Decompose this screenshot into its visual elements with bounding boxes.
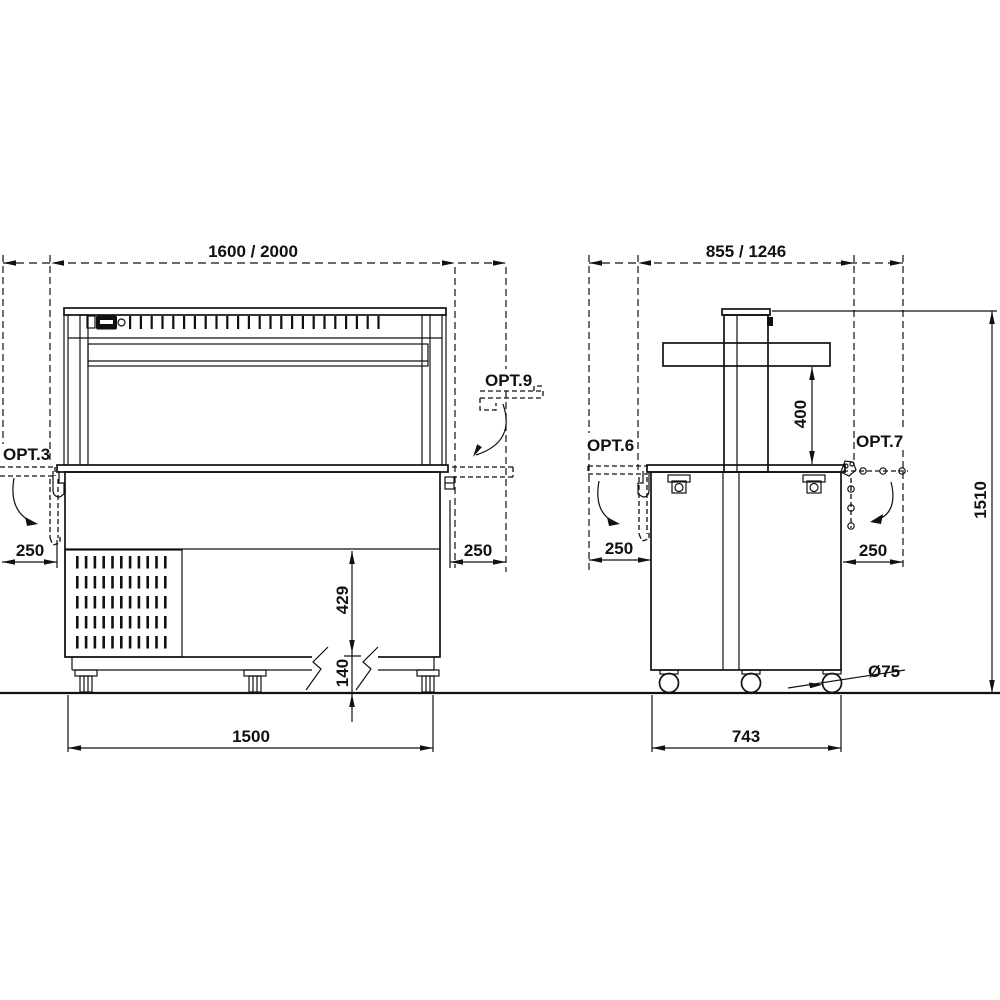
side-total-depth-dim: 855 / 1246: [706, 242, 786, 261]
front-upper-height-dim: 429: [333, 586, 352, 614]
front-counter-slab: [57, 465, 448, 472]
side-dimensions: 855 / 1246 250 250 400 1510 743 Ø75 O: [587, 242, 997, 752]
side-counter-slab: [647, 465, 845, 472]
front-body-width-dim: 1500: [232, 727, 270, 746]
opt7-rail-option: [841, 461, 908, 529]
side-post-knob: [767, 317, 773, 326]
grille-slots: [76, 556, 167, 649]
opt7-label: OPT.7: [856, 432, 903, 451]
front-shelf-left-dim: 250: [16, 541, 44, 560]
opt3-shelf-option: [0, 467, 64, 545]
front-light-strip: [88, 344, 428, 366]
front-outer-wall-right: [442, 315, 446, 465]
front-control-display-readout: [100, 320, 113, 324]
caster-diameter-dim: Ø75: [868, 662, 900, 681]
opt6-fold-arrow: [598, 481, 616, 523]
opt7-fold-arrow: [874, 482, 893, 521]
side-post-upper: [724, 315, 768, 472]
opt3-label: OPT.3: [3, 445, 50, 464]
side-overshelf: [663, 343, 830, 366]
side-clamp-left: [668, 475, 690, 493]
side-post-cap: [722, 309, 770, 315]
side-view: [647, 309, 845, 693]
front-view: [57, 308, 448, 692]
opt9-raised-hook: [480, 398, 496, 410]
side-total-height-dim: 1510: [971, 481, 990, 519]
opt9-shelf-option: [445, 386, 543, 489]
opt6-shelf-option: [588, 466, 649, 541]
opt6-label: OPT.6: [587, 436, 634, 455]
side-shelf-left-dim: 250: [605, 539, 633, 558]
technical-drawing: 1600 / 2000 250 250 429 140 1500 OPT.3 O…: [0, 0, 1000, 1000]
opt9-label: OPT.9: [485, 371, 532, 390]
side-clamp-right: [803, 475, 825, 493]
front-caster-middle: [244, 670, 266, 692]
front-shelf-right-dim: 250: [464, 541, 492, 560]
side-body: [651, 472, 841, 670]
front-caster-right: [417, 670, 439, 692]
top-vent-slots: [129, 316, 380, 329]
side-caster-middle: [742, 670, 761, 693]
front-total-width-dim: 1600 / 2000: [208, 242, 298, 261]
side-shelf-right-dim: 250: [859, 541, 887, 560]
front-base-height-dim: 140: [333, 659, 352, 687]
side-caster-left: [660, 670, 679, 693]
side-overshelf-height-dim: 400: [791, 400, 810, 428]
side-body-depth-dim: 743: [732, 727, 760, 746]
front-caster-left: [75, 670, 97, 692]
front-control-led: [118, 319, 125, 326]
opt3-fold-arrow: [13, 478, 34, 523]
front-outer-wall-left: [64, 315, 68, 465]
front-canopy: [64, 308, 446, 315]
